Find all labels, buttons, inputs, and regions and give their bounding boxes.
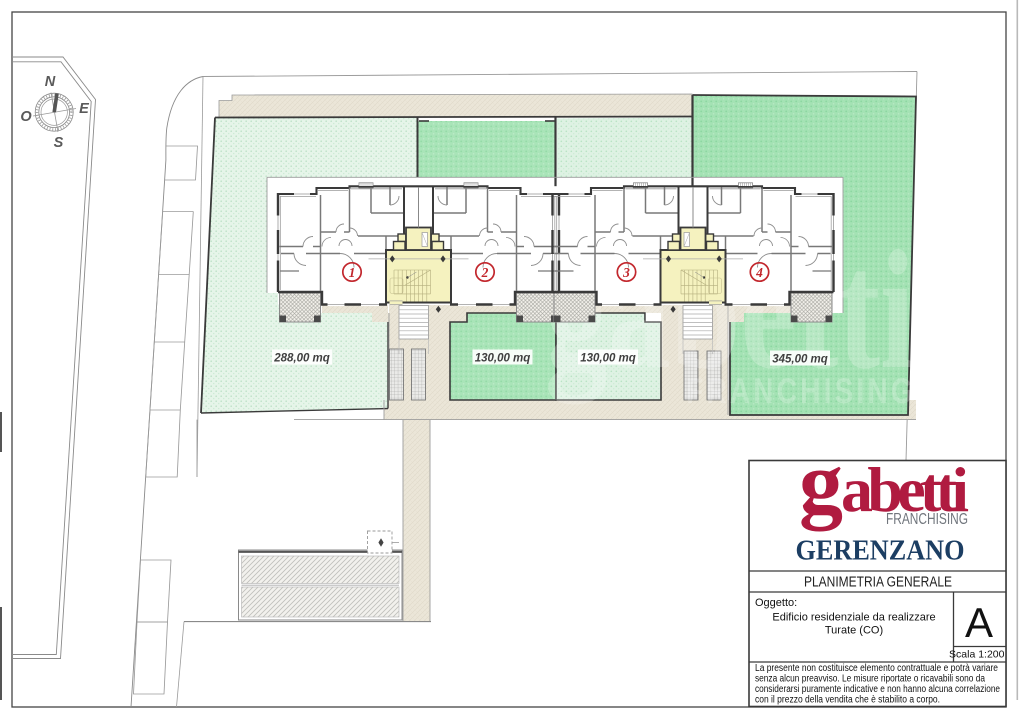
svg-text:N: N	[45, 74, 56, 90]
svg-text:A: A	[965, 599, 993, 646]
svg-text:GERENZANO: GERENZANO	[796, 536, 965, 567]
svg-text:senza alcun preavviso. Le misu: senza alcun preavviso. Le misure riporta…	[755, 674, 985, 685]
svg-text:Edificio residenziale da reali: Edificio residenziale da realizzare	[772, 612, 935, 624]
svg-text:considerarsi puramente indicat: considerarsi puramente indicative e non …	[755, 684, 1000, 695]
svg-text:PLANIMETRIA GENERALE: PLANIMETRIA GENERALE	[804, 575, 952, 591]
svg-text:E: E	[79, 101, 90, 117]
svg-text:3: 3	[622, 265, 630, 280]
svg-text:130,00 mq: 130,00 mq	[475, 353, 531, 365]
svg-text:FRANCHISING: FRANCHISING	[886, 511, 968, 528]
svg-text:345,00 mq: 345,00 mq	[772, 354, 828, 366]
svg-text:4: 4	[755, 265, 763, 280]
svg-text:FRANCHISING: FRANCHISING	[686, 372, 916, 411]
svg-text:Oggetto:: Oggetto:	[755, 597, 797, 609]
svg-text:130,00 mq: 130,00 mq	[580, 353, 636, 365]
svg-text:2: 2	[481, 265, 489, 280]
svg-text:La presente non costituisce el: La presente non costituisce elemento con…	[755, 663, 998, 674]
svg-text:Turate (CO): Turate (CO)	[825, 625, 883, 637]
svg-text:288,00 mq: 288,00 mq	[273, 353, 330, 365]
svg-text:S: S	[54, 135, 64, 151]
svg-text:O: O	[20, 109, 32, 125]
svg-text:Scala 1:200: Scala 1:200	[949, 649, 1005, 661]
svg-text:g: g	[799, 435, 843, 532]
svg-text:1: 1	[349, 265, 356, 280]
svg-text:con il prezzo della vendita ch: con il prezzo della vendita che è stabil…	[755, 695, 940, 706]
